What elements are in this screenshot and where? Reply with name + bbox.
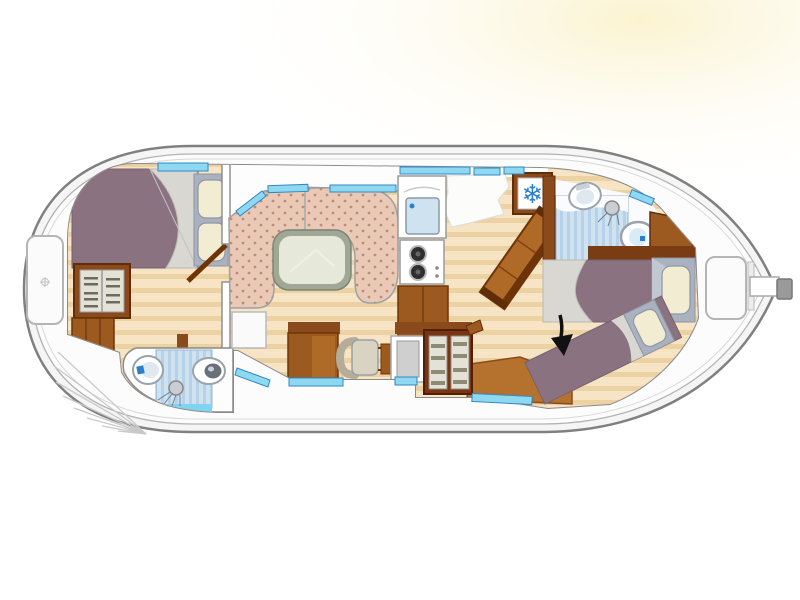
window: [158, 163, 208, 171]
faucet: [410, 204, 415, 209]
stove-knob: [435, 266, 439, 270]
window: [474, 168, 500, 175]
pillow: [198, 180, 225, 218]
sink: [406, 198, 439, 234]
window: [400, 167, 470, 174]
double-bed: [72, 169, 228, 268]
dinette-table: [273, 230, 351, 290]
toilet: [133, 356, 163, 384]
window: [330, 185, 396, 192]
stern-locker: [706, 257, 746, 319]
window: [504, 167, 524, 174]
sideboard: [232, 312, 266, 348]
window: [289, 378, 343, 386]
desk-cabinet-door: [312, 336, 335, 377]
appliance: [391, 336, 424, 382]
bathroom-sink: [193, 358, 225, 384]
boat-floorplan: ❄: [0, 0, 800, 600]
bow-wardrobe: [74, 264, 130, 318]
bow-locker: [27, 236, 63, 324]
window: [395, 377, 417, 385]
window: [268, 184, 308, 192]
single-bed-top: [543, 258, 695, 322]
stove-knob: [435, 274, 439, 278]
stove: [400, 240, 444, 284]
desk-wall: [288, 322, 340, 334]
snowflake-icon: ❄: [522, 180, 544, 210]
floorplan-canvas: ❄: [0, 0, 800, 600]
